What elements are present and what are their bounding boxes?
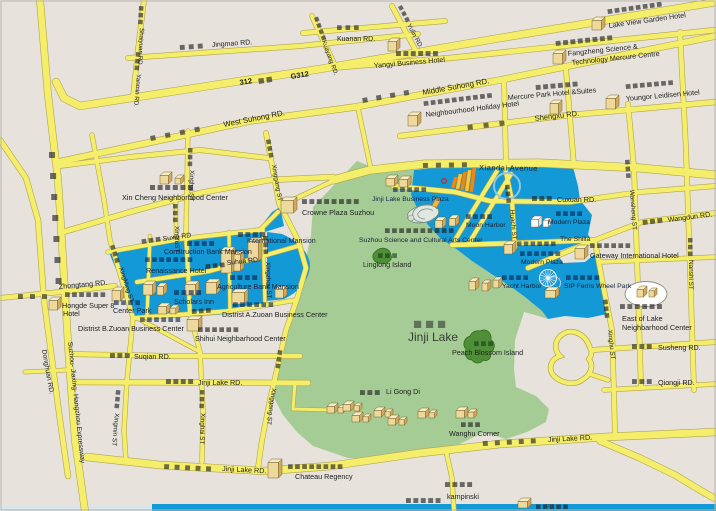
svg-text:Suqian RD.: Suqian RD. xyxy=(134,352,171,361)
svg-text:Shihui Neighbarhood Center: Shihui Neighbarhood Center xyxy=(195,334,286,343)
svg-text:Hotel: Hotel xyxy=(63,309,80,318)
svg-text:East of Lake: East of Lake xyxy=(622,314,663,323)
svg-text:Modern Plaza: Modern Plaza xyxy=(548,219,590,226)
svg-text:Crowne Plaza Suzhou: Crowne Plaza Suzhou xyxy=(302,208,374,217)
svg-text:Renaissance Hotel: Renaissance Hotel xyxy=(146,266,207,275)
svg-text:Agriculture Bank Mansion: Agriculture Bank Mansion xyxy=(217,282,299,291)
svg-text:Yacht Harbor: Yacht Harbor xyxy=(502,283,542,290)
svg-text:Distrist B.Zuoan Business Cent: Distrist B.Zuoan Business Center xyxy=(78,324,184,333)
svg-text:Kuanan RD.: Kuanan RD. xyxy=(337,36,375,43)
svg-text:Xinghai ST: Xinghai ST xyxy=(187,170,195,201)
svg-text:Xingzhou ST: Xingzhou ST xyxy=(264,262,272,299)
svg-text:Xin Cheng Neighborhood Center: Xin Cheng Neighborhood Center xyxy=(122,193,228,202)
svg-text:Wanghu Corner: Wanghu Corner xyxy=(449,429,500,438)
svg-text:Xinghai ST: Xinghai ST xyxy=(198,413,206,445)
svg-text:Susheng RD.: Susheng RD. xyxy=(658,343,701,352)
svg-text:Jinji Lake Business Plaza: Jinji Lake Business Plaza xyxy=(372,196,449,203)
svg-text:Suzhou Science and Cultural Ar: Suzhou Science and Cultural Arts Center xyxy=(359,237,483,244)
svg-text:Li Gong Di: Li Gong Di xyxy=(386,387,420,396)
svg-text:Jinji Lake: Jinji Lake xyxy=(408,330,458,344)
svg-text:Peach Blossom Island: Peach Blossom Island xyxy=(452,348,523,357)
svg-text:Neighbarhood Center: Neighbarhood Center xyxy=(622,323,692,332)
svg-text:Qiongji RD.: Qiongji RD. xyxy=(658,378,695,387)
svg-text:Cuxuan RD.: Cuxuan RD. xyxy=(557,195,596,204)
svg-text:Construction Bank Mansion: Construction Bank Mansion xyxy=(164,247,252,256)
svg-text:International Mansion: International Mansion xyxy=(247,236,316,245)
svg-text:Moon Harbor: Moon Harbor xyxy=(466,222,506,229)
svg-text:kampinski: kampinski xyxy=(447,492,479,501)
svg-text:Linglong Island: Linglong Island xyxy=(363,260,411,269)
svg-text:Modern Plaza: Modern Plaza xyxy=(521,259,563,266)
svg-text:The Shilla: The Shilla xyxy=(560,236,590,243)
svg-text:Gateway International Hotel: Gateway International Hotel xyxy=(590,251,679,260)
svg-text:Distrist A.Zuoan Business Cent: Distrist A.Zuoan Business Center xyxy=(222,310,328,319)
svg-text:500 m: 500 m xyxy=(545,504,561,510)
svg-text:SIP Ferris Wheel Park: SIP Ferris Wheel Park xyxy=(564,283,632,290)
svg-text:Jinji Lake RD.: Jinji Lake RD. xyxy=(198,378,242,387)
svg-text:Scholars Inn: Scholars Inn xyxy=(174,297,214,306)
svg-text:Chateau Regency: Chateau Regency xyxy=(295,472,353,481)
svg-text:Xiandai Avenue: Xiandai Avenue xyxy=(479,163,538,173)
svg-text:Center Park: Center Park xyxy=(113,306,152,315)
svg-text:Nanshi ST: Nanshi ST xyxy=(687,260,694,290)
